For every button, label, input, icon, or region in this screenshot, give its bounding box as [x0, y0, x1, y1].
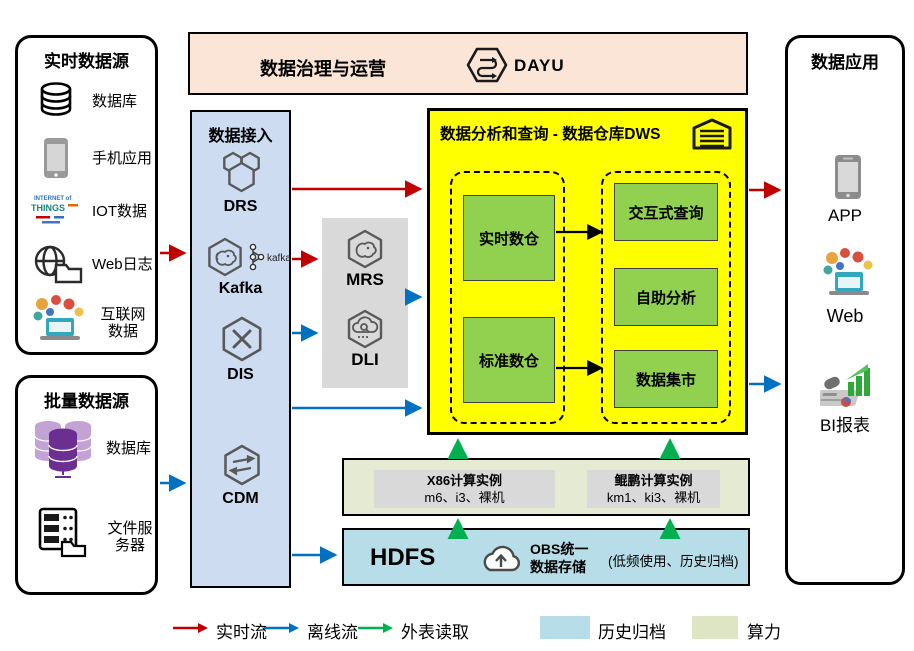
realtime-source-label: 数据库: [92, 93, 154, 110]
dayu-icon: [465, 43, 509, 87]
realtime-sources-box: 实时数据源 数据库 手机应用 INTER: [15, 35, 158, 355]
internet-data-icon: [30, 294, 88, 346]
obs-cloud-icon: [478, 542, 524, 576]
governance-title: 数据治理与运营: [260, 55, 386, 81]
web-label: Web: [788, 306, 902, 327]
file-server-icon: [36, 506, 88, 558]
bi-report-icon: [820, 360, 876, 410]
legend-compute-label: 算力: [747, 618, 781, 643]
app-phone-icon: [833, 153, 863, 201]
web-log-icon: [30, 240, 86, 286]
dis-icon: [217, 314, 267, 364]
x86-instance: X86计算实例 m6、i3、裸机: [374, 470, 555, 508]
node-label: 自助分析: [636, 287, 696, 308]
realtime-source-label: 互联网数据: [94, 306, 152, 341]
node-label: 数据集市: [636, 369, 696, 390]
app-label: APP: [788, 206, 902, 226]
x86-instance-specs: m6、i3、裸机: [374, 489, 555, 506]
dws-title: 数据分析和查询 - 数据仓库DWS: [440, 122, 660, 144]
batch-sources-box: 批量数据源: [15, 375, 158, 595]
legend-offline-arrow-icon: [263, 621, 301, 635]
hdfs-box: HDFS OBS统一 数据存储 (低频使用、历史归档): [342, 528, 750, 586]
legend-archive-label: 历史归档: [598, 618, 666, 643]
legend-offline-label: 离线流: [307, 618, 358, 643]
x86-instance-name: X86计算实例: [374, 472, 555, 489]
dayu-label: DAYU: [514, 56, 565, 76]
drs-icon: [219, 150, 265, 196]
obs-label-line2: 数据存储: [530, 558, 588, 576]
kafka-logo-text: kafka: [267, 253, 291, 264]
cdm-label: CDM: [192, 490, 289, 508]
dws-standard-warehouse: 标准数仓: [463, 317, 555, 403]
kunpeng-instance: 鲲鹏计算实例 km1、ki3、裸机: [587, 470, 720, 508]
obs-label-line1: OBS统一: [530, 540, 588, 558]
obs-label: OBS统一 数据存储: [530, 540, 588, 576]
bi-report-label: BI报表: [788, 416, 902, 436]
realtime-source-label: Web日志: [92, 256, 156, 273]
drs-label: DRS: [192, 198, 289, 216]
batch-source-label: 文件服务器: [106, 520, 154, 555]
dws-realtime-warehouse: 实时数仓: [463, 195, 555, 281]
dws-interactive-query: 交互式查询: [614, 183, 718, 241]
svg-text:INTERNET of: INTERNET of: [34, 196, 72, 202]
purple-database-icon: [30, 418, 96, 480]
realtime-source-label: 手机应用: [92, 150, 156, 167]
kafka-label: Kafka: [192, 280, 289, 298]
applications-box: 数据应用 APP Web: [785, 35, 905, 585]
dis-label: DIS: [192, 366, 289, 384]
dws-self-analysis: 自助分析: [614, 268, 718, 326]
obs-note: (低频使用、历史归档): [608, 550, 739, 570]
governance-banner: 数据治理与运营 DAYU: [188, 32, 748, 95]
dws-box: 数据分析和查询 - 数据仓库DWS 实时数仓 标准数仓 交互式查询 自助分析 数…: [427, 108, 748, 435]
kunpeng-instance-name: 鲲鹏计算实例: [587, 472, 720, 489]
database-icon: [34, 80, 78, 122]
web-app-icon: [820, 246, 876, 302]
kafka-icon: kafka: [204, 236, 294, 278]
mrs-icon: [343, 228, 387, 270]
node-label: 实时数仓: [479, 228, 539, 249]
ingestion-column: 数据接入 DRS: [190, 110, 291, 588]
legend-realtime-arrow-icon: [172, 621, 210, 635]
node-label: 交互式查询: [628, 202, 703, 223]
ingestion-title: 数据接入: [192, 122, 289, 146]
dli-icon: [343, 308, 387, 350]
warehouse-icon: [691, 117, 733, 151]
cdm-icon: [219, 442, 265, 488]
realtime-sources-title: 实时数据源: [18, 47, 155, 72]
legend-compute-swatch: [692, 616, 738, 639]
compute-box: X86计算实例 m6、i3、裸机 鲲鹏计算实例 km1、ki3、裸机: [342, 458, 750, 516]
legend-external-arrow-icon: [357, 621, 395, 635]
dws-data-mart: 数据集市: [614, 350, 718, 408]
legend-archive-swatch: [540, 616, 590, 639]
dli-label: DLI: [322, 350, 408, 370]
node-label: 标准数仓: [479, 350, 539, 371]
batch-source-label: 数据库: [106, 440, 158, 457]
realtime-source-label: IOT数据: [92, 203, 156, 220]
mrs-label: MRS: [322, 270, 408, 290]
mobile-phone-icon: [40, 136, 72, 180]
legend-external-label: 外表读取: [401, 618, 469, 643]
legend-realtime-label: 实时流: [216, 618, 267, 643]
kunpeng-instance-specs: km1、ki3、裸机: [587, 489, 720, 506]
applications-title: 数据应用: [788, 48, 902, 73]
iot-wordcloud-icon: INTERNET of THINGS: [28, 190, 86, 230]
batch-sources-title: 批量数据源: [18, 387, 155, 412]
processing-box: MRS DLI: [322, 218, 408, 388]
architecture-diagram: 实时数据源 数据库 手机应用 INTER: [0, 0, 914, 651]
hdfs-label: HDFS: [370, 544, 435, 572]
svg-text:THINGS: THINGS: [31, 203, 65, 213]
